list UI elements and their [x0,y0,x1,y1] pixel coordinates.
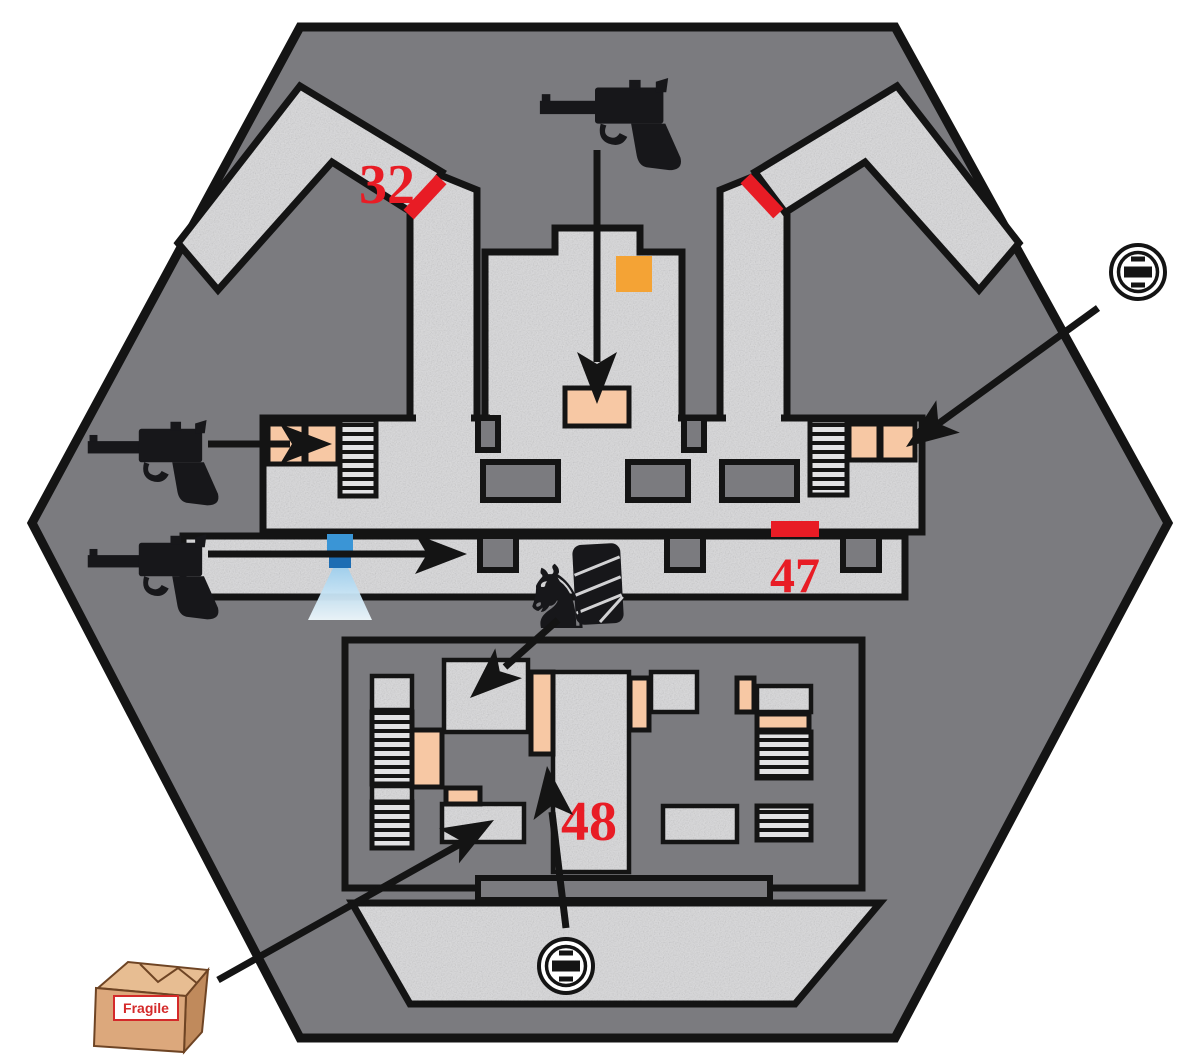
door-socket-target [531,672,553,754]
corridor-left-vertical [410,175,477,430]
door-marker-47 [771,521,819,537]
level-map: 32 47 48 ♞ Fragile [0,0,1200,1063]
knight-statue-icon: ♞ [518,546,597,649]
label-47: 47 [770,547,820,603]
bottom-block-footer [478,878,770,900]
orange-item-marker [616,256,652,292]
fragile-crate-icon: Fragile [94,962,208,1052]
power-socket-icon-bottom [539,939,593,993]
crate-label: Fragile [123,1000,169,1016]
stairs-lower-left-1 [372,712,412,784]
stairs-lower-right-1 [757,732,811,778]
stairs-upper-left [340,420,376,496]
closet-right-1 [849,424,879,460]
stairs-lower-left-2 [372,802,412,848]
label-32: 32 [359,154,415,216]
hall-bottom [352,903,880,1004]
power-socket-icon-top-right [1111,245,1165,299]
level-map-page: 32 47 48 ♞ Fragile [0,0,1200,1063]
label-48: 48 [561,791,617,853]
stairs-lower-right-2 [757,806,811,840]
stairs-upper-right [810,420,847,495]
